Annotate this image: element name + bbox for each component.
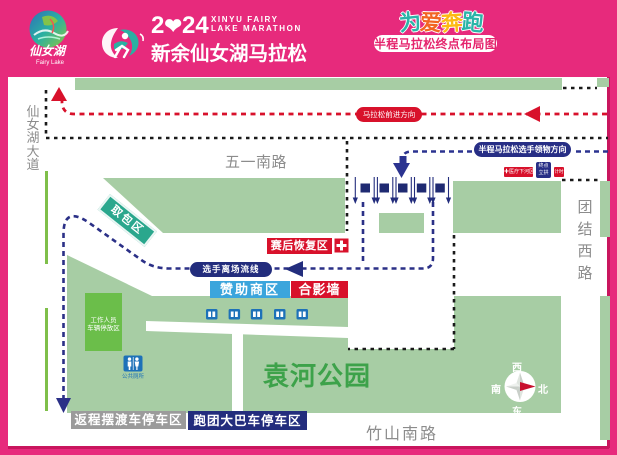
svg-text:Fairy Lake: Fairy Lake — [36, 60, 65, 66]
svg-text:仙女湖: 仙女湖 — [29, 44, 67, 58]
